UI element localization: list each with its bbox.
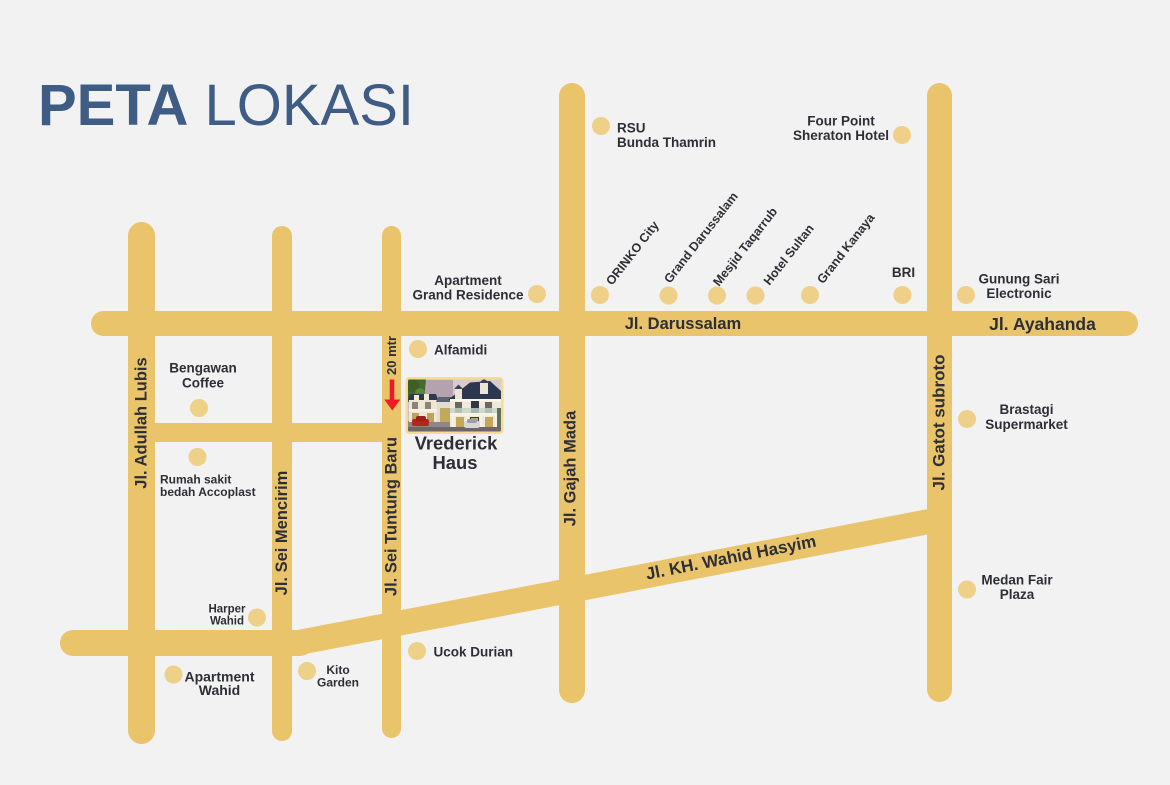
svg-text:Coffee: Coffee (182, 376, 224, 391)
svg-text:BRI: BRI (892, 265, 915, 280)
svg-text:Sheraton Hotel: Sheraton Hotel (793, 128, 889, 143)
svg-text:Haus: Haus (433, 452, 478, 473)
svg-text:Ucok Durian: Ucok Durian (434, 645, 514, 660)
svg-text:Garden: Garden (317, 676, 359, 690)
svg-text:Wahid: Wahid (199, 682, 240, 698)
svg-text:Brastagi: Brastagi (999, 402, 1053, 417)
svg-text:Bengawan: Bengawan (169, 361, 237, 376)
svg-text:Alfamidi: Alfamidi (434, 343, 487, 358)
svg-text:Jl. Adullah Lubis: Jl. Adullah Lubis (133, 357, 151, 488)
svg-text:Four Point: Four Point (807, 114, 875, 129)
svg-text:Medan Fair: Medan Fair (981, 573, 1053, 588)
svg-text:Jl. Gatot subroto: Jl. Gatot subroto (930, 355, 949, 491)
svg-text:Apartment: Apartment (434, 273, 502, 288)
svg-text:Gunung Sari: Gunung Sari (979, 272, 1060, 287)
svg-text:Bunda Thamrin: Bunda Thamrin (617, 135, 716, 150)
svg-text:Grand Residence: Grand Residence (412, 288, 524, 303)
svg-text:Jl. Sei Mencirim: Jl. Sei Mencirim (273, 471, 291, 596)
svg-text:20 mtr: 20 mtr (384, 336, 399, 375)
svg-text:Supermarket: Supermarket (985, 417, 1068, 432)
svg-text:Jl. Gajah Mada: Jl. Gajah Mada (562, 410, 580, 526)
svg-text:bedah Accoplast: bedah Accoplast (160, 485, 256, 499)
svg-text:Vrederick: Vrederick (415, 433, 499, 454)
svg-text:Electronic: Electronic (986, 286, 1052, 301)
svg-text:PETA LOKASI: PETA LOKASI (38, 73, 414, 138)
svg-text:Jl. Darussalam: Jl. Darussalam (625, 315, 741, 333)
svg-text:Harper: Harper (208, 604, 246, 616)
svg-text:RSU: RSU (617, 121, 646, 136)
svg-text:Plaza: Plaza (1000, 587, 1035, 602)
svg-text:Jl. Ayahanda: Jl. Ayahanda (989, 314, 1096, 334)
svg-text:Jl. Sei Tuntung Baru: Jl. Sei Tuntung Baru (383, 437, 401, 596)
svg-text:Wahid: Wahid (210, 616, 244, 628)
